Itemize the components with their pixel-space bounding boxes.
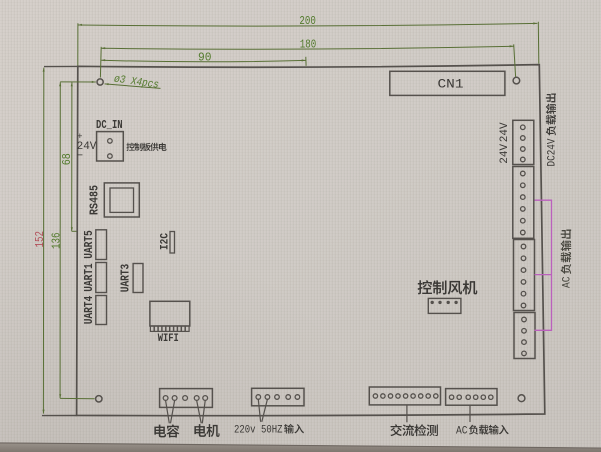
svg-text:24V: 24V (499, 122, 511, 142)
svg-text:24V: 24V (499, 144, 511, 164)
svg-text:136: 136 (51, 232, 64, 249)
svg-text:UART4: UART4 (82, 296, 96, 325)
svg-text:200: 200 (299, 15, 316, 28)
svg-text:UART1: UART1 (82, 263, 96, 292)
svg-text:90: 90 (198, 51, 212, 64)
svg-text:UART3: UART3 (119, 264, 133, 293)
svg-text:AC: AC (456, 425, 468, 437)
svg-text:220v 50HZ: 220v 50HZ (234, 424, 283, 436)
svg-text:68: 68 (61, 153, 74, 165)
svg-text:RS485: RS485 (88, 185, 102, 215)
svg-text:DC_IN: DC_IN (96, 118, 123, 132)
svg-text:−: − (76, 150, 83, 162)
svg-text:CN1: CN1 (438, 76, 464, 91)
svg-text:AC: AC (562, 276, 574, 288)
svg-text:180: 180 (300, 39, 317, 52)
svg-text:WIFI: WIFI (158, 333, 179, 345)
svg-text:I2C: I2C (160, 233, 172, 250)
svg-text:UART5: UART5 (82, 230, 96, 259)
svg-text:DC24V: DC24V (546, 138, 558, 166)
svg-text:152: 152 (34, 231, 47, 248)
